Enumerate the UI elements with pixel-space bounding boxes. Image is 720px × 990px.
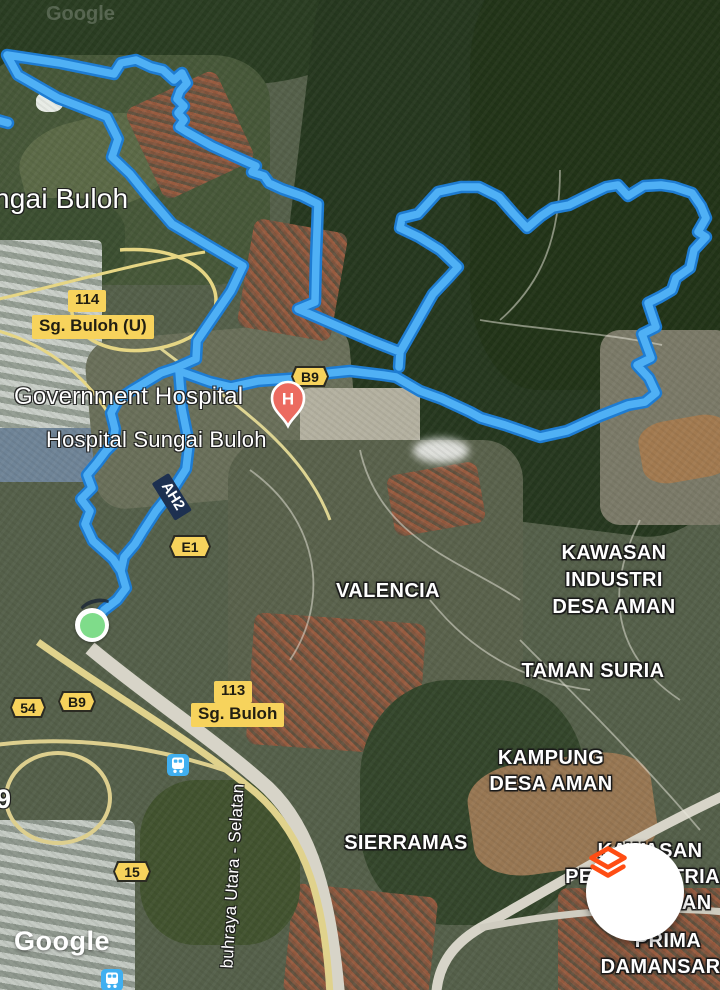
- route-badge-54: 54: [10, 697, 46, 718]
- locality-label: ngai Buloh: [0, 183, 128, 215]
- hospital-label-line2: Hospital Sungai Buloh: [46, 427, 267, 453]
- area-label-kampung-desa-aman: KAMPUNG DESA AMAN: [489, 745, 612, 797]
- map-canvas[interactable]: Google ngai Buloh Government Hospital Ho…: [0, 0, 720, 990]
- route-start-marker[interactable]: [75, 608, 109, 642]
- route-badge-e1: E1: [169, 535, 211, 558]
- route-badge-114-name: Sg. Buloh (U): [32, 315, 154, 339]
- route-stub: [0, 119, 8, 123]
- area-label-sierramas: SIERRAMAS: [344, 832, 468, 855]
- area-label-valencia: VALENCIA: [336, 580, 440, 603]
- route-badge-113-name: Sg. Buloh: [191, 703, 284, 727]
- area-label-taman-suria: TAMAN SURIA: [522, 660, 665, 683]
- route-badge-15: 15: [113, 861, 151, 882]
- route-badge-114: 114: [68, 290, 106, 312]
- google-logo: Google: [14, 926, 110, 957]
- road-number-partial: 9: [0, 784, 11, 815]
- map-type-fab[interactable]: [586, 843, 684, 941]
- area-label-kawasan-industri: KAWASAN INDUSTRI DESA AMAN: [552, 540, 675, 621]
- layers-icon: [586, 843, 630, 887]
- train-station-icon[interactable]: [101, 969, 123, 990]
- route-badge-113: 113: [214, 681, 252, 703]
- hospital-pin-marker[interactable]: H: [266, 380, 310, 432]
- hospital-pin-letter: H: [282, 390, 294, 409]
- google-watermark-faint: Google: [46, 3, 115, 26]
- train-station-icon[interactable]: [167, 754, 189, 776]
- route-badge-b9-lower: B9: [58, 691, 96, 712]
- hospital-label-line1: Government Hospital: [14, 383, 243, 411]
- interchange-loop: [6, 753, 110, 843]
- route-polyline-casing: [7, 55, 706, 624]
